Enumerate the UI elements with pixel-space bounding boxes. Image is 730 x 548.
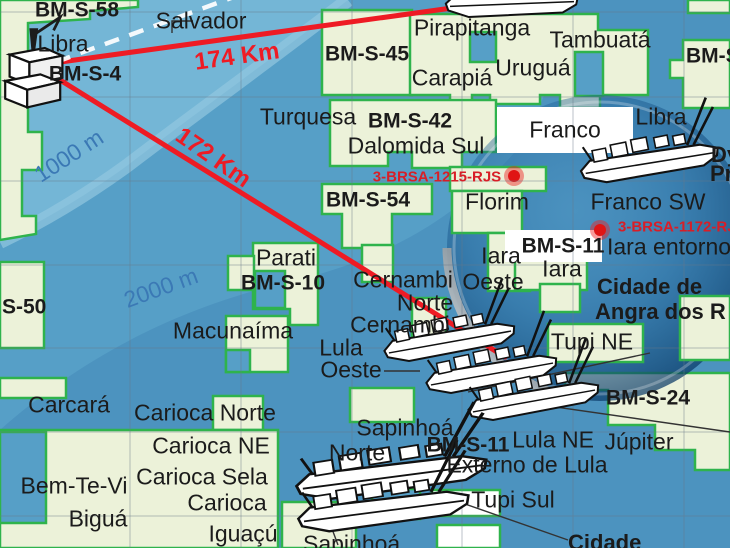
bms11-label-box: [505, 230, 602, 262]
presalt-map[interactable]: BM-S-58LibraBM-S-4Salvador174 Km172 Km10…: [0, 0, 730, 548]
well-marker-dot: [508, 170, 520, 182]
license-block: [350, 388, 414, 422]
license-block: [213, 396, 263, 430]
well-marker-dot: [594, 224, 606, 236]
license-block: [0, 378, 66, 398]
license-block: [688, 0, 730, 13]
license-block-bms50: [0, 262, 44, 348]
map-canvas: [0, 0, 730, 548]
